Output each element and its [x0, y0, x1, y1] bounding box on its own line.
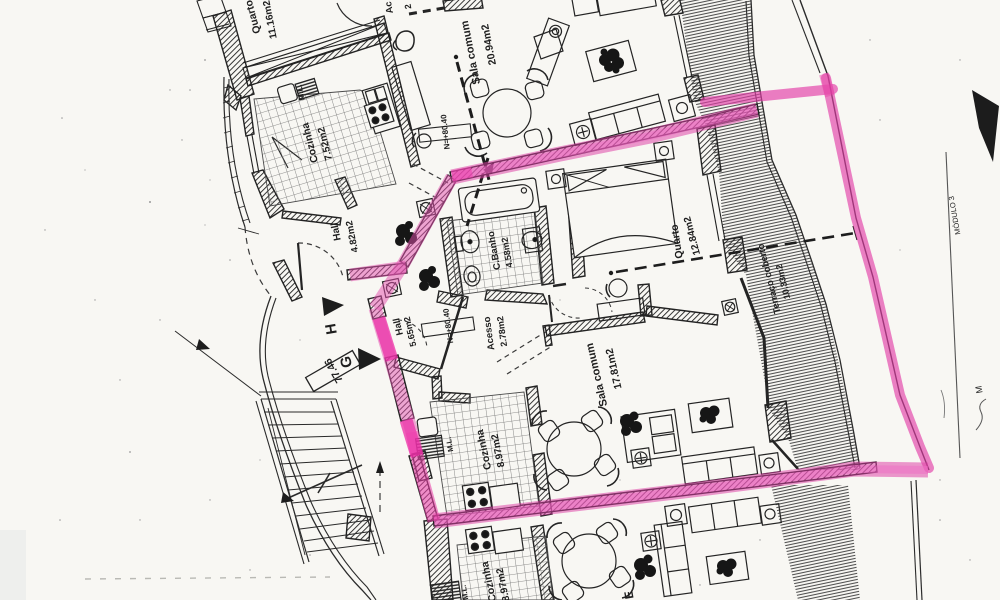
- svg-text:Ac: Ac: [383, 0, 396, 14]
